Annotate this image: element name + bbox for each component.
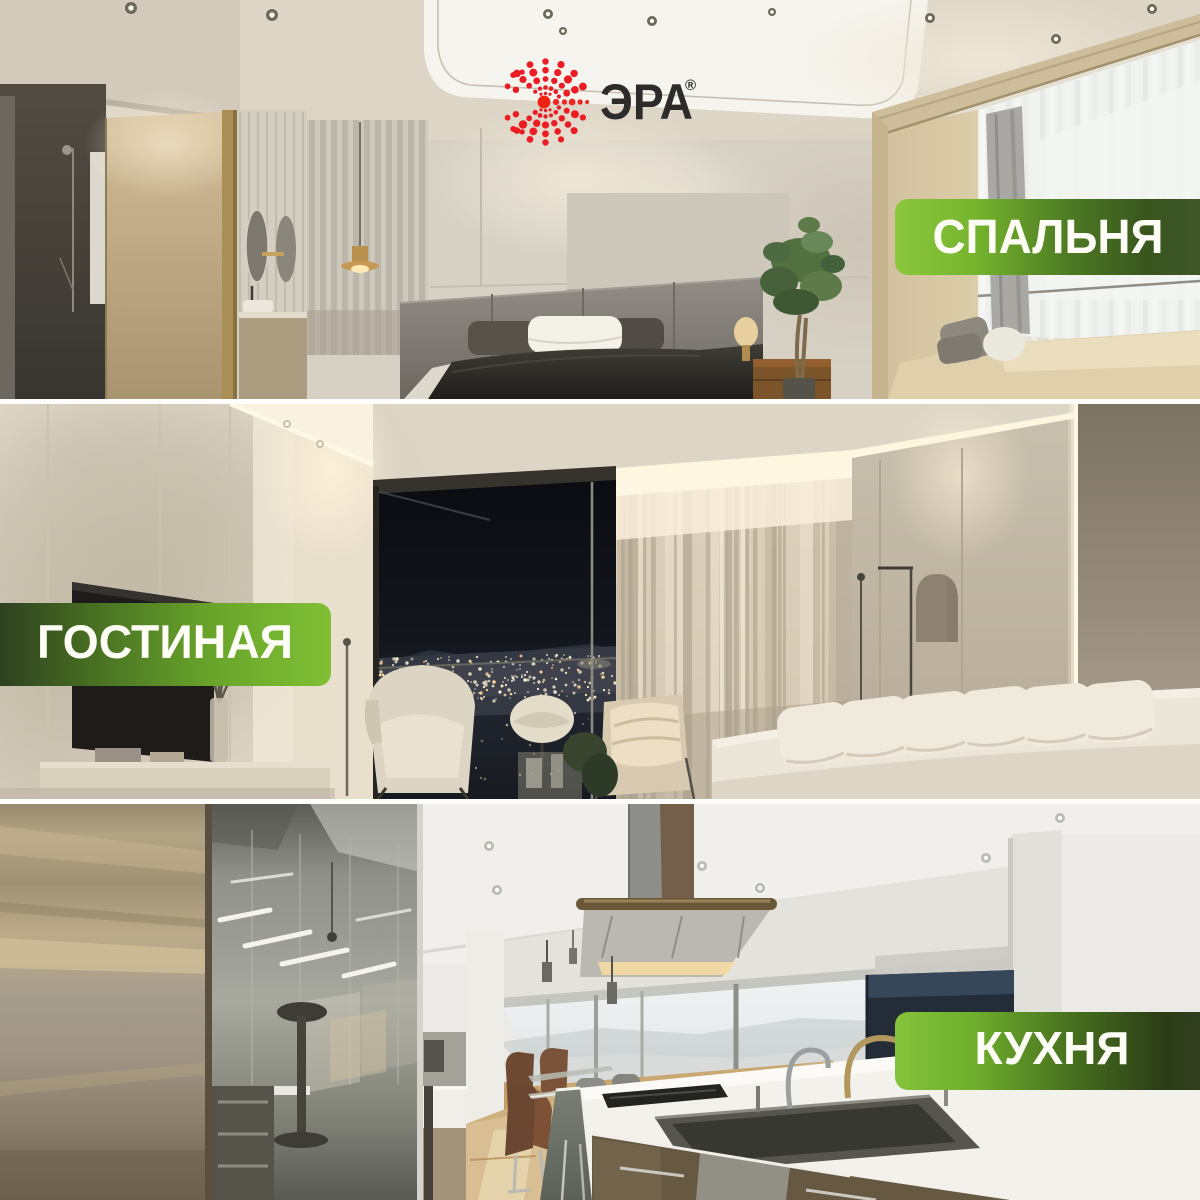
svg-text:СПАЛЬНЯ: СПАЛЬНЯ xyxy=(933,211,1164,264)
svg-text:ЭРА: ЭРА xyxy=(600,74,693,130)
svg-text:®: ® xyxy=(685,77,696,94)
svg-text:ГОСТИНАЯ: ГОСТИНАЯ xyxy=(37,615,293,668)
svg-text:КУХНЯ: КУХНЯ xyxy=(975,1022,1130,1074)
